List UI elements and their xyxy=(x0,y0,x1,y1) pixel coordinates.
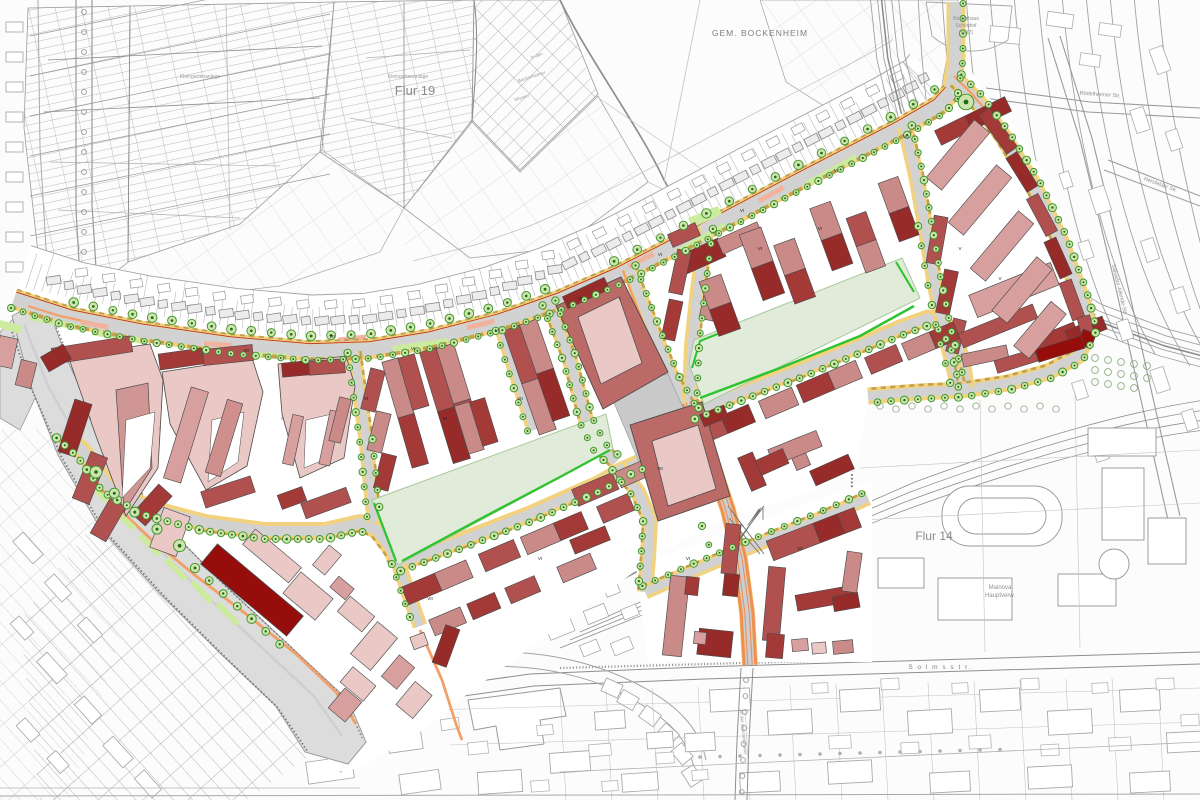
svg-text:VII: VII xyxy=(903,134,909,139)
svg-text:VI: VI xyxy=(538,556,542,561)
svg-text:Bürgerhaus: Bürgerhaus xyxy=(953,16,979,22)
svg-text:VI: VI xyxy=(364,396,368,401)
svg-text:VI: VI xyxy=(578,296,582,301)
svg-text:VI: VI xyxy=(834,168,838,173)
svg-text:VI: VI xyxy=(495,328,499,333)
svg-text:Mainova: Mainova xyxy=(989,585,1012,591)
svg-text:VI: VI xyxy=(818,226,822,231)
svg-text:Hauptverw.: Hauptverw. xyxy=(985,593,1015,599)
svg-text:GEM. BOCKENHEIM: GEM. BOCKENHEIM xyxy=(712,28,808,38)
svg-text:VI: VI xyxy=(411,346,415,351)
svg-text:VII: VII xyxy=(517,396,523,401)
svg-text:I: I xyxy=(619,296,620,301)
svg-text:VI: VI xyxy=(443,416,447,421)
svg-text:VI: VI xyxy=(686,556,690,561)
svg-text:Flur 19: Flur 19 xyxy=(395,83,435,98)
svg-text:VII: VII xyxy=(657,466,663,471)
svg-text:I: I xyxy=(159,426,160,431)
svg-text:Kleingartenanlage: Kleingartenanlage xyxy=(180,74,221,80)
svg-text:V: V xyxy=(958,246,961,251)
svg-text:VII: VII xyxy=(243,348,249,353)
svg-text:I: I xyxy=(89,416,90,421)
svg-text:VII: VII xyxy=(329,334,335,339)
svg-text:(MÜZ): (MÜZ) xyxy=(959,29,973,36)
svg-text:Kleingartenanlage: Kleingartenanlage xyxy=(388,74,429,80)
svg-text:Flur 14: Flur 14 xyxy=(915,529,953,543)
svg-text:Schönhof: Schönhof xyxy=(955,23,977,29)
svg-text:I: I xyxy=(281,416,282,421)
svg-text:VI: VI xyxy=(658,252,662,257)
svg-text:VII: VII xyxy=(427,596,433,601)
svg-text:VII: VII xyxy=(797,546,803,551)
svg-text:S o l m s s t r.: S o l m s s t r. xyxy=(908,664,971,671)
svg-text:VI: VI xyxy=(740,208,744,213)
svg-text:VI: VI xyxy=(758,246,762,251)
svg-text:V: V xyxy=(998,276,1001,281)
